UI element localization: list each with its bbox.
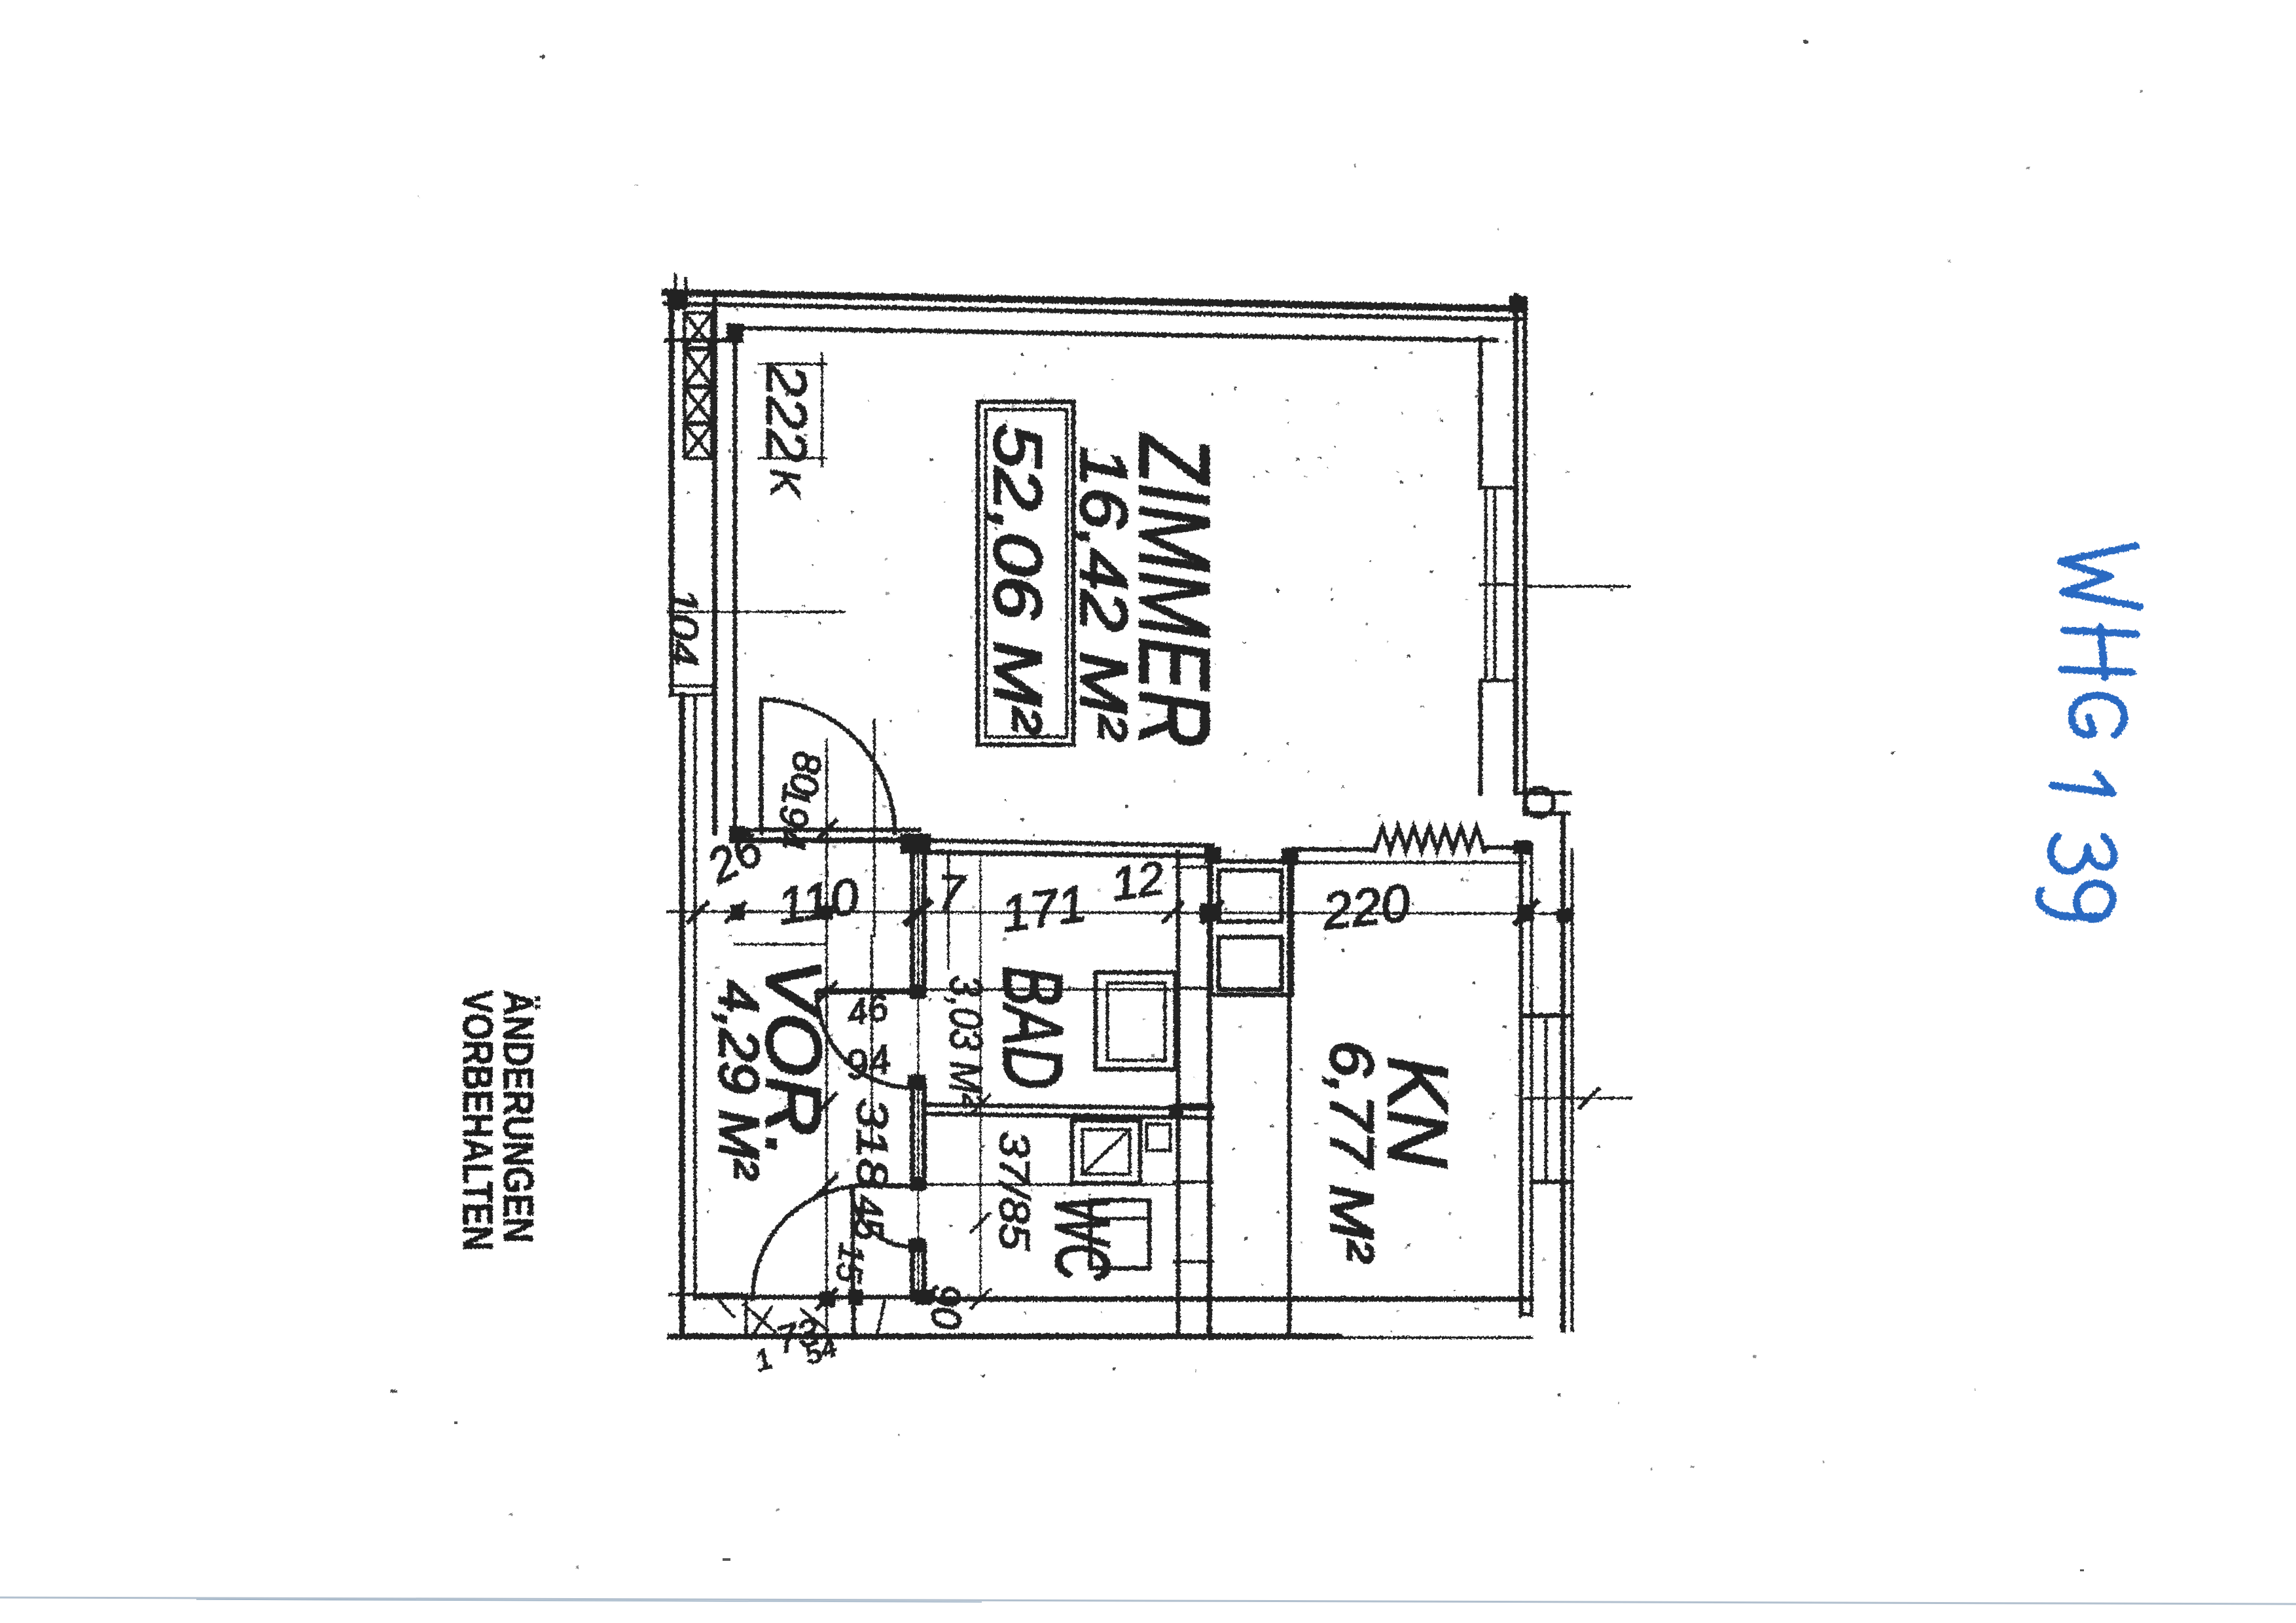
svg-text:12: 12 [1108, 851, 1167, 910]
svg-text:7: 7 [937, 865, 967, 921]
svg-text:222: 222 [755, 363, 817, 462]
svg-text:220: 220 [1319, 873, 1412, 940]
svg-text:3,03 M²: 3,03 M² [941, 975, 992, 1107]
svg-text:K: K [762, 469, 809, 499]
svg-text:171: 171 [997, 874, 1090, 943]
svg-text:104: 104 [662, 588, 706, 666]
svg-text:318: 318 [848, 1098, 897, 1188]
svg-text:6,77 M²: 6,77 M² [1318, 1041, 1385, 1263]
svg-text:94: 94 [842, 1037, 894, 1089]
svg-text:45: 45 [846, 1195, 891, 1240]
svg-text:110: 110 [774, 866, 862, 935]
svg-text:4,29 M²: 4,29 M² [708, 980, 770, 1180]
svg-text:46: 46 [844, 986, 891, 1034]
svg-text:37/85: 37/85 [991, 1131, 1038, 1250]
svg-text:15: 15 [829, 1241, 872, 1285]
svg-text:BAD: BAD [986, 966, 1079, 1089]
svg-text:VORBEHALTEN: VORBEHALTEN [454, 990, 501, 1251]
svg-text:16,42 M²: 16,42 M² [1067, 446, 1140, 741]
svg-text:52,06 M²: 52,06 M² [980, 424, 1055, 734]
